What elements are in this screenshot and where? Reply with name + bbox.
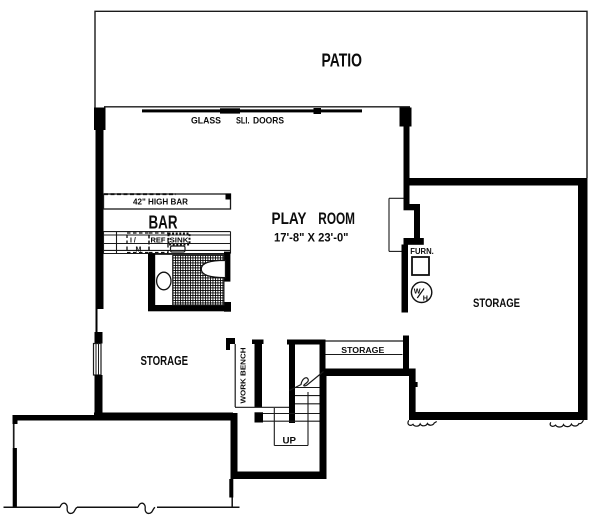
svg-text:DOORS: DOORS [253,116,284,126]
svg-text:PLAY: PLAY [272,209,307,228]
svg-text:M: M [136,247,142,254]
svg-text:H: H [423,294,428,303]
svg-text:BAR: BAR [149,212,178,233]
svg-text:42" HIGH BAR: 42" HIGH BAR [133,197,188,207]
svg-text:SLI.: SLI. [236,116,250,126]
svg-text:17'-8" X 23'-0": 17'-8" X 23'-0" [274,231,349,245]
svg-text:ROOM: ROOM [318,209,355,228]
svg-text:STORAGE: STORAGE [141,354,189,368]
svg-text:GLASS: GLASS [191,116,221,126]
svg-text:SINK: SINK [170,236,190,245]
svg-text:STORAGE: STORAGE [341,346,384,355]
svg-text:WORK BENCH: WORK BENCH [238,348,247,404]
svg-text:I /: I / [130,238,136,245]
svg-text:FURN.: FURN. [410,247,434,256]
svg-text:REF: REF [151,238,167,245]
svg-text:UP: UP [283,435,297,446]
svg-text:STORAGE: STORAGE [473,296,520,310]
svg-text:PATIO: PATIO [322,50,363,71]
